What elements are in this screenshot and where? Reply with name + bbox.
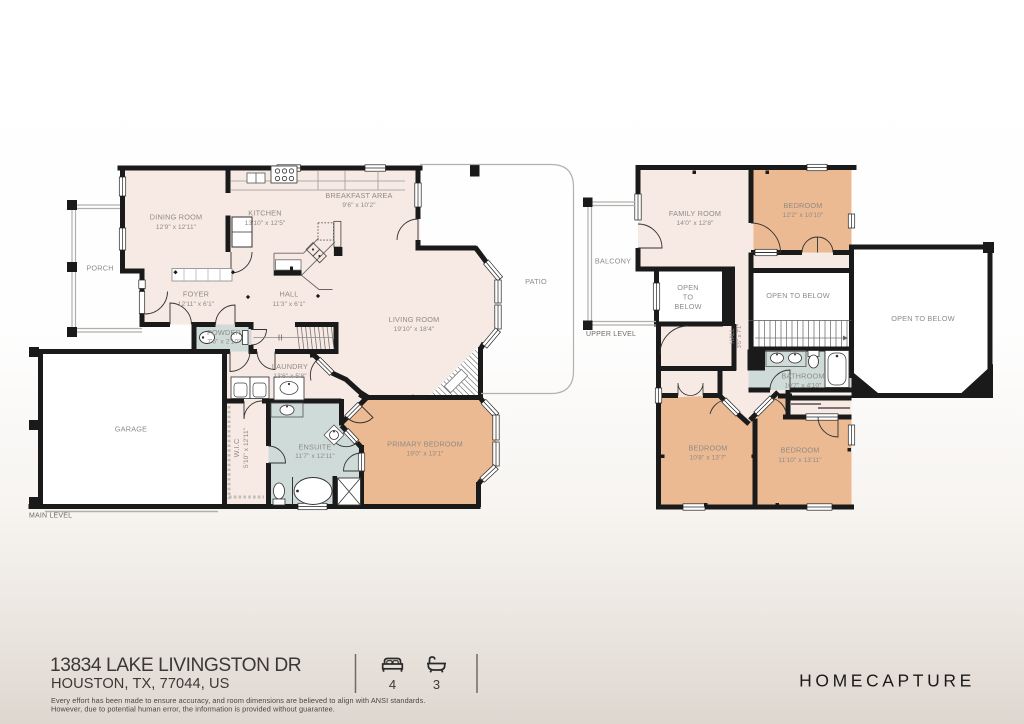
svg-text:UPPER LEVEL: UPPER LEVEL: [586, 331, 636, 338]
svg-text:HOMECAPTURE: HOMECAPTURE: [799, 671, 975, 691]
svg-text:OPEN TO BELOW: OPEN TO BELOW: [891, 314, 955, 323]
svg-text:TO: TO: [683, 293, 694, 302]
svg-text:OPEN TO BELOW: OPEN TO BELOW: [766, 291, 830, 300]
svg-text:BREAKFAST AREA: BREAKFAST AREA: [325, 191, 392, 200]
svg-text:PRIMARY BEDROOM: PRIMARY BEDROOM: [387, 440, 463, 449]
svg-text:19'0" x 13'1": 19'0" x 13'1": [407, 451, 445, 458]
svg-text:10'8" x 13'7": 10'8" x 13'7": [690, 455, 728, 462]
svg-text:19'10" x 18'4": 19'10" x 18'4": [394, 326, 435, 333]
svg-text:13'6" x 5'8": 13'6" x 5'8": [273, 373, 307, 380]
svg-text:12'2" x 10'10": 12'2" x 10'10": [783, 212, 824, 219]
svg-text:HALL: HALL: [279, 290, 298, 299]
svg-text:KITCHEN: KITCHEN: [248, 209, 281, 218]
svg-text:BATHROOM: BATHROOM: [781, 372, 824, 381]
svg-text:ENSUITE: ENSUITE: [298, 443, 331, 452]
svg-text:PORCH: PORCH: [86, 264, 113, 273]
svg-text:3'5" x 7'1": 3'5" x 7'1": [737, 324, 743, 348]
svg-text:However, due to potential huma: However, due to potential human error, t…: [51, 705, 335, 714]
svg-text:11'3" x 6'1": 11'3" x 6'1": [273, 301, 306, 308]
svg-text:11'10" x 13'11": 11'10" x 13'11": [778, 457, 822, 464]
svg-text:MAIN LEVEL: MAIN LEVEL: [29, 513, 72, 520]
svg-text:FAMILY ROOM: FAMILY ROOM: [669, 209, 721, 218]
svg-text:W.I.C: W.I.C: [232, 439, 241, 458]
svg-text:4: 4: [389, 677, 396, 692]
svg-text:7'6" x 2'10": 7'6" x 2'10": [207, 339, 241, 346]
svg-text:HOUSTON, TX, 77044, US: HOUSTON, TX, 77044, US: [51, 676, 230, 692]
svg-text:PATIO: PATIO: [525, 277, 547, 286]
svg-text:10'7" x 4'10": 10'7" x 4'10": [785, 383, 823, 390]
svg-text:OPEN: OPEN: [677, 283, 698, 292]
svg-text:LIVING ROOM: LIVING ROOM: [389, 315, 440, 324]
svg-text:HALL: HALL: [730, 328, 736, 344]
svg-text:BALCONY: BALCONY: [595, 257, 631, 266]
svg-text:14'0" x 12'8": 14'0" x 12'8": [677, 220, 715, 227]
svg-text:13834 LAKE LIVINGSTON DR: 13834 LAKE LIVINGSTON DR: [50, 655, 301, 676]
svg-text:3: 3: [433, 677, 440, 692]
svg-text:12'9" x 12'11": 12'9" x 12'11": [156, 224, 197, 231]
svg-text:BEDROOM: BEDROOM: [688, 444, 727, 453]
svg-text:5'10" x 12'11": 5'10" x 12'11": [243, 427, 250, 468]
svg-text:LAUNDRY: LAUNDRY: [272, 362, 308, 371]
svg-text:BELOW: BELOW: [674, 302, 701, 311]
svg-text:FOYER: FOYER: [183, 290, 209, 299]
svg-text:BEDROOM: BEDROOM: [783, 201, 822, 210]
svg-text:11'7" x 12'11": 11'7" x 12'11": [295, 453, 335, 460]
svg-text:DINING ROOM: DINING ROOM: [150, 213, 202, 222]
svg-text:POWDER: POWDER: [207, 328, 241, 337]
svg-text:GARAGE: GARAGE: [115, 425, 147, 434]
svg-text:BEDROOM: BEDROOM: [780, 446, 819, 455]
svg-text:13'10" x 12'5": 13'10" x 12'5": [245, 220, 286, 227]
svg-text:12'11" x 6'1": 12'11" x 6'1": [178, 301, 215, 308]
svg-text:9'6" x 10'2": 9'6" x 10'2": [342, 202, 376, 209]
